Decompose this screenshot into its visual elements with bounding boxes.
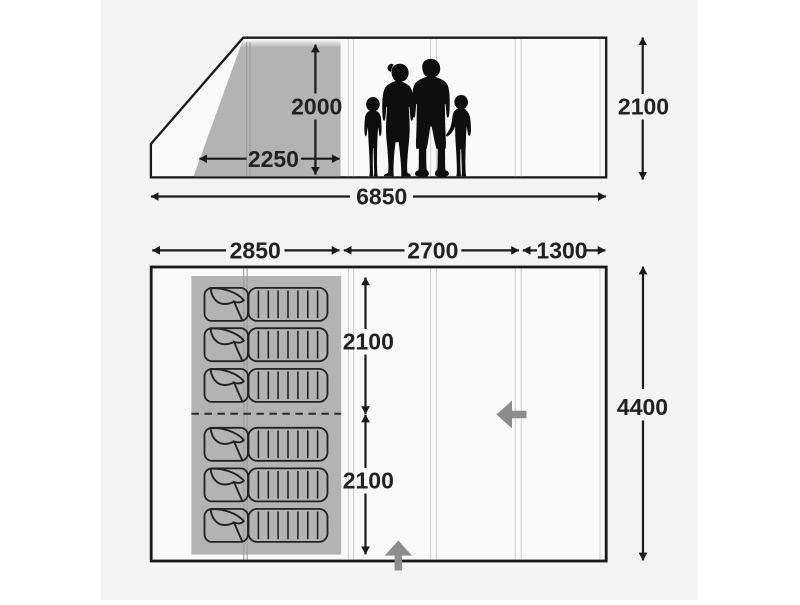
svg-text:2700: 2700 — [407, 238, 458, 264]
svg-text:2100: 2100 — [343, 329, 394, 355]
svg-text:4400: 4400 — [617, 394, 668, 420]
svg-text:2250: 2250 — [248, 146, 299, 172]
svg-text:2100: 2100 — [618, 93, 669, 119]
svg-text:6850: 6850 — [356, 184, 407, 210]
svg-text:2850: 2850 — [230, 238, 281, 264]
svg-text:1300: 1300 — [536, 238, 587, 264]
svg-text:2100: 2100 — [343, 468, 394, 494]
svg-text:2000: 2000 — [291, 93, 342, 119]
